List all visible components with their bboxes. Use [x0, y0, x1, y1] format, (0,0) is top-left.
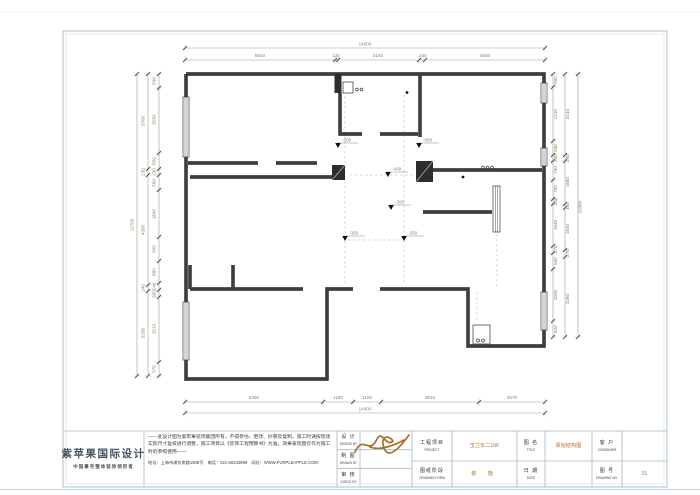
drawing-canvas: 1400058401203150240465053601160110038102…: [0, 0, 700, 495]
svg-text:-400: -400: [392, 167, 402, 172]
drawing-no-value: 01: [622, 461, 667, 487]
date-label-cn: 日 期: [524, 468, 538, 474]
dim-label: 2530: [152, 114, 157, 125]
dim-label: 230: [152, 168, 157, 176]
drawing-no-label-cn: 图 号: [600, 468, 614, 474]
stage-label: 图纸阶段 DRAWING FORM: [412, 461, 452, 487]
dim-label: 230: [141, 168, 146, 176]
consumer-label-en: CONSUMER: [598, 448, 617, 452]
dim-label: 300: [152, 290, 157, 298]
dim-label: 270: [553, 245, 558, 253]
sheet-title-value: 原始结构图: [545, 431, 592, 461]
drawing-no-label-en: DRAWING NO.: [596, 476, 618, 480]
dim-label: 240: [141, 284, 146, 292]
svg-text:-300: -300: [342, 138, 352, 143]
sheet-title-label-cn: 图 名: [524, 440, 538, 446]
dim-label: 750: [553, 185, 558, 193]
stage-label-cn: 图纸阶段: [420, 468, 444, 474]
dim-label: 14000: [359, 42, 372, 47]
company-tagline: 中国豪宅整体装饰领衔者: [73, 464, 134, 470]
dim-label: 14000: [359, 407, 372, 412]
dim-label: 2110: [553, 109, 558, 119]
dim-label: 900: [152, 245, 157, 253]
level-marker: -400: [385, 167, 408, 178]
consumer-label: 客 户 CONSUMER: [592, 431, 622, 461]
dim-label: 3280: [141, 327, 146, 338]
sheet-title-label: 图 名 TITLE: [517, 431, 545, 461]
dim-label: 620: [553, 325, 558, 333]
level-marker: -350: [388, 200, 411, 211]
dim-label: 2510: [152, 323, 157, 334]
dim-label: 3810: [425, 395, 436, 400]
sheet-border: [63, 31, 667, 487]
door-leaf: [343, 82, 353, 93]
dim-label: 240: [565, 154, 570, 162]
dim-label: 4650: [480, 53, 491, 58]
stage-label-en: DRAWING FORM: [419, 476, 445, 480]
company-address: 地址：上海市浦东南路1508号 电话：021-60333999 网址：WWW.P…: [148, 460, 318, 465]
dim-label: 180: [553, 197, 558, 205]
dim-label: 5840: [255, 53, 266, 58]
date-label-en: DATE: [527, 476, 535, 480]
dim-label: 1640: [553, 219, 558, 230]
project-label-cn: 工程项目: [420, 440, 444, 446]
dim-label: 3150: [373, 53, 384, 58]
drawing-no-label: 图 号 DRAWING NO.: [592, 461, 622, 487]
dim-label: 570: [152, 365, 157, 373]
dim-label: 1160: [333, 395, 343, 400]
level-marker: -350: [342, 231, 365, 242]
dim-label: 1680: [565, 176, 570, 187]
consumer-label-cn: 客 户: [600, 440, 614, 446]
dim-label: 2570: [507, 395, 518, 400]
dim-label: 150: [565, 202, 570, 210]
company-name: 紫苹果国际设计: [62, 448, 146, 461]
designer-signature: [350, 426, 414, 466]
dim-label: 640: [553, 257, 558, 265]
dim-label: 1840: [152, 208, 157, 219]
level-marker: -300: [335, 138, 358, 149]
svg-text:-350: -350: [423, 138, 433, 143]
dim-label: 530: [152, 77, 157, 85]
stage-value: 装 施: [452, 461, 517, 487]
svg-text:-350: -350: [349, 231, 359, 236]
dim-label: 500: [553, 76, 558, 84]
windows: [183, 83, 547, 360]
project-value: 玉兰东二16F: [452, 431, 517, 461]
sheet-inner-border: [66, 34, 664, 484]
svg-text:-350: -350: [408, 231, 418, 236]
dim-label: 3140: [565, 108, 570, 119]
dim-label: 1100: [362, 395, 372, 400]
level-markers: -300-350-400-350-350-350: [335, 138, 439, 242]
dimension-labels: 1400058401203150240465053601160110038102…: [130, 42, 583, 412]
dim-label: 650: [152, 157, 157, 165]
dim-label: 2000: [553, 289, 558, 300]
dim-label: 1640: [565, 223, 570, 234]
dim-label: 3700: [141, 115, 146, 126]
sheet-title-label-en: TITLE: [527, 448, 536, 452]
dim-label: 240: [152, 282, 157, 290]
dim-label: 240: [419, 53, 427, 58]
floor-plan-drawing: 1400058401203150240465053601160110038102…: [0, 0, 700, 495]
consumer-value: [622, 431, 667, 461]
date-value: [545, 461, 592, 487]
checker-row: 审 核 CHECK BY: [337, 468, 360, 487]
checker-label-en: CHECK BY: [340, 480, 356, 484]
dim-label: 5360: [249, 395, 260, 400]
level-marker: -350: [401, 231, 424, 242]
project-label-en: PROJECT: [425, 448, 440, 452]
disclaimer-text: ——此设计图为紫苹果装饰集团所有，不得参仿、更改、抄袭及复制，施工时请按现场实际…: [148, 434, 333, 456]
level-marker: -350: [416, 138, 439, 149]
date-label: 日 期 DATE: [517, 461, 545, 487]
dim-label: 270: [565, 249, 570, 257]
svg-text:-350: -350: [395, 200, 405, 205]
dim-label: 4300: [141, 224, 146, 235]
dim-label: 10360: [578, 200, 583, 213]
disclaimer-block: ——此设计图为紫苹果装饰集团所有，不得参仿、更改、抄袭及复制，施工时请按现场实际…: [148, 434, 333, 484]
dim-label: 580: [152, 179, 157, 187]
checker-label-cn: 审 核: [341, 472, 355, 478]
dim-label: 730: [553, 166, 558, 174]
dim-label: 880: [152, 268, 157, 276]
dim-label: 240: [553, 154, 558, 162]
dim-label: 3260: [565, 293, 570, 304]
company-logo: 紫苹果国际设计 中国豪宅整体装饰领衔者: [63, 431, 144, 487]
project-label: 工程项目 PROJECT: [412, 431, 452, 461]
dim-label: 11750: [130, 218, 135, 231]
dim-label: 120: [332, 53, 340, 58]
dim-label: 530: [553, 144, 558, 152]
